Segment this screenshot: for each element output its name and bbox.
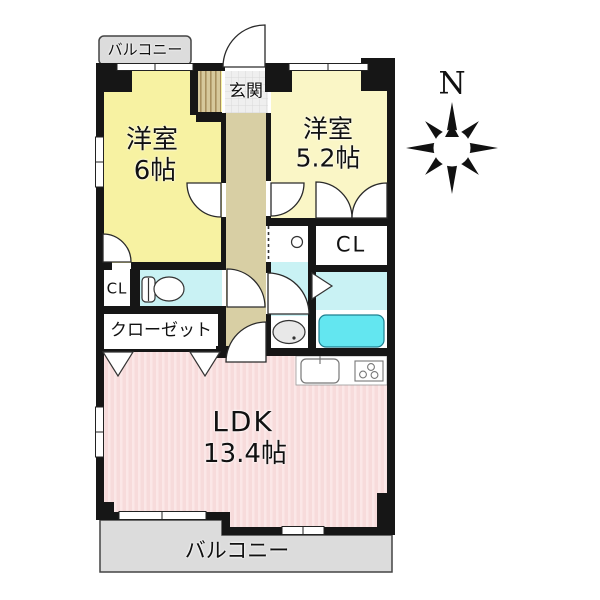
kitchen-sink-icon bbox=[301, 356, 339, 383]
compass-icon bbox=[406, 102, 498, 194]
bedroom52-name-label: 洋室 bbox=[303, 117, 353, 142]
shoe-cabinet bbox=[197, 71, 221, 113]
ldk-name-label: LDK bbox=[212, 408, 274, 436]
closet-main-label: クローゼット bbox=[110, 323, 212, 340]
balcony-bottom-label: バルコニー bbox=[185, 541, 290, 562]
entrance-label: 玄関 bbox=[229, 84, 263, 101]
bedroom52-area-label: 5.2帖 bbox=[296, 146, 361, 171]
ldk-area-label: 13.4帖 bbox=[203, 441, 287, 467]
corridor-floor bbox=[226, 113, 266, 356]
closet-right-label: CL bbox=[336, 235, 366, 256]
stove-icon bbox=[355, 361, 383, 381]
compass-north-label: N bbox=[438, 69, 465, 100]
bedroom6-name-label: 洋室 bbox=[126, 127, 178, 153]
toilet-icon bbox=[142, 277, 184, 302]
washing-machine-icon bbox=[292, 237, 303, 248]
closet-left-label: CL bbox=[107, 282, 128, 297]
floor-plan-canvas: バルコニー 玄関 洋室 6帖 洋室 5.2帖 CL CL クローゼット LDK … bbox=[0, 0, 600, 600]
bathtub-icon bbox=[316, 310, 387, 348]
entrance-door-arc bbox=[223, 25, 265, 67]
balcony-top-label: バルコニー bbox=[108, 43, 183, 58]
bedroom6-area-label: 6帖 bbox=[134, 158, 177, 184]
wash-basin-icon bbox=[273, 321, 305, 344]
floorplan-drawing bbox=[0, 0, 600, 600]
